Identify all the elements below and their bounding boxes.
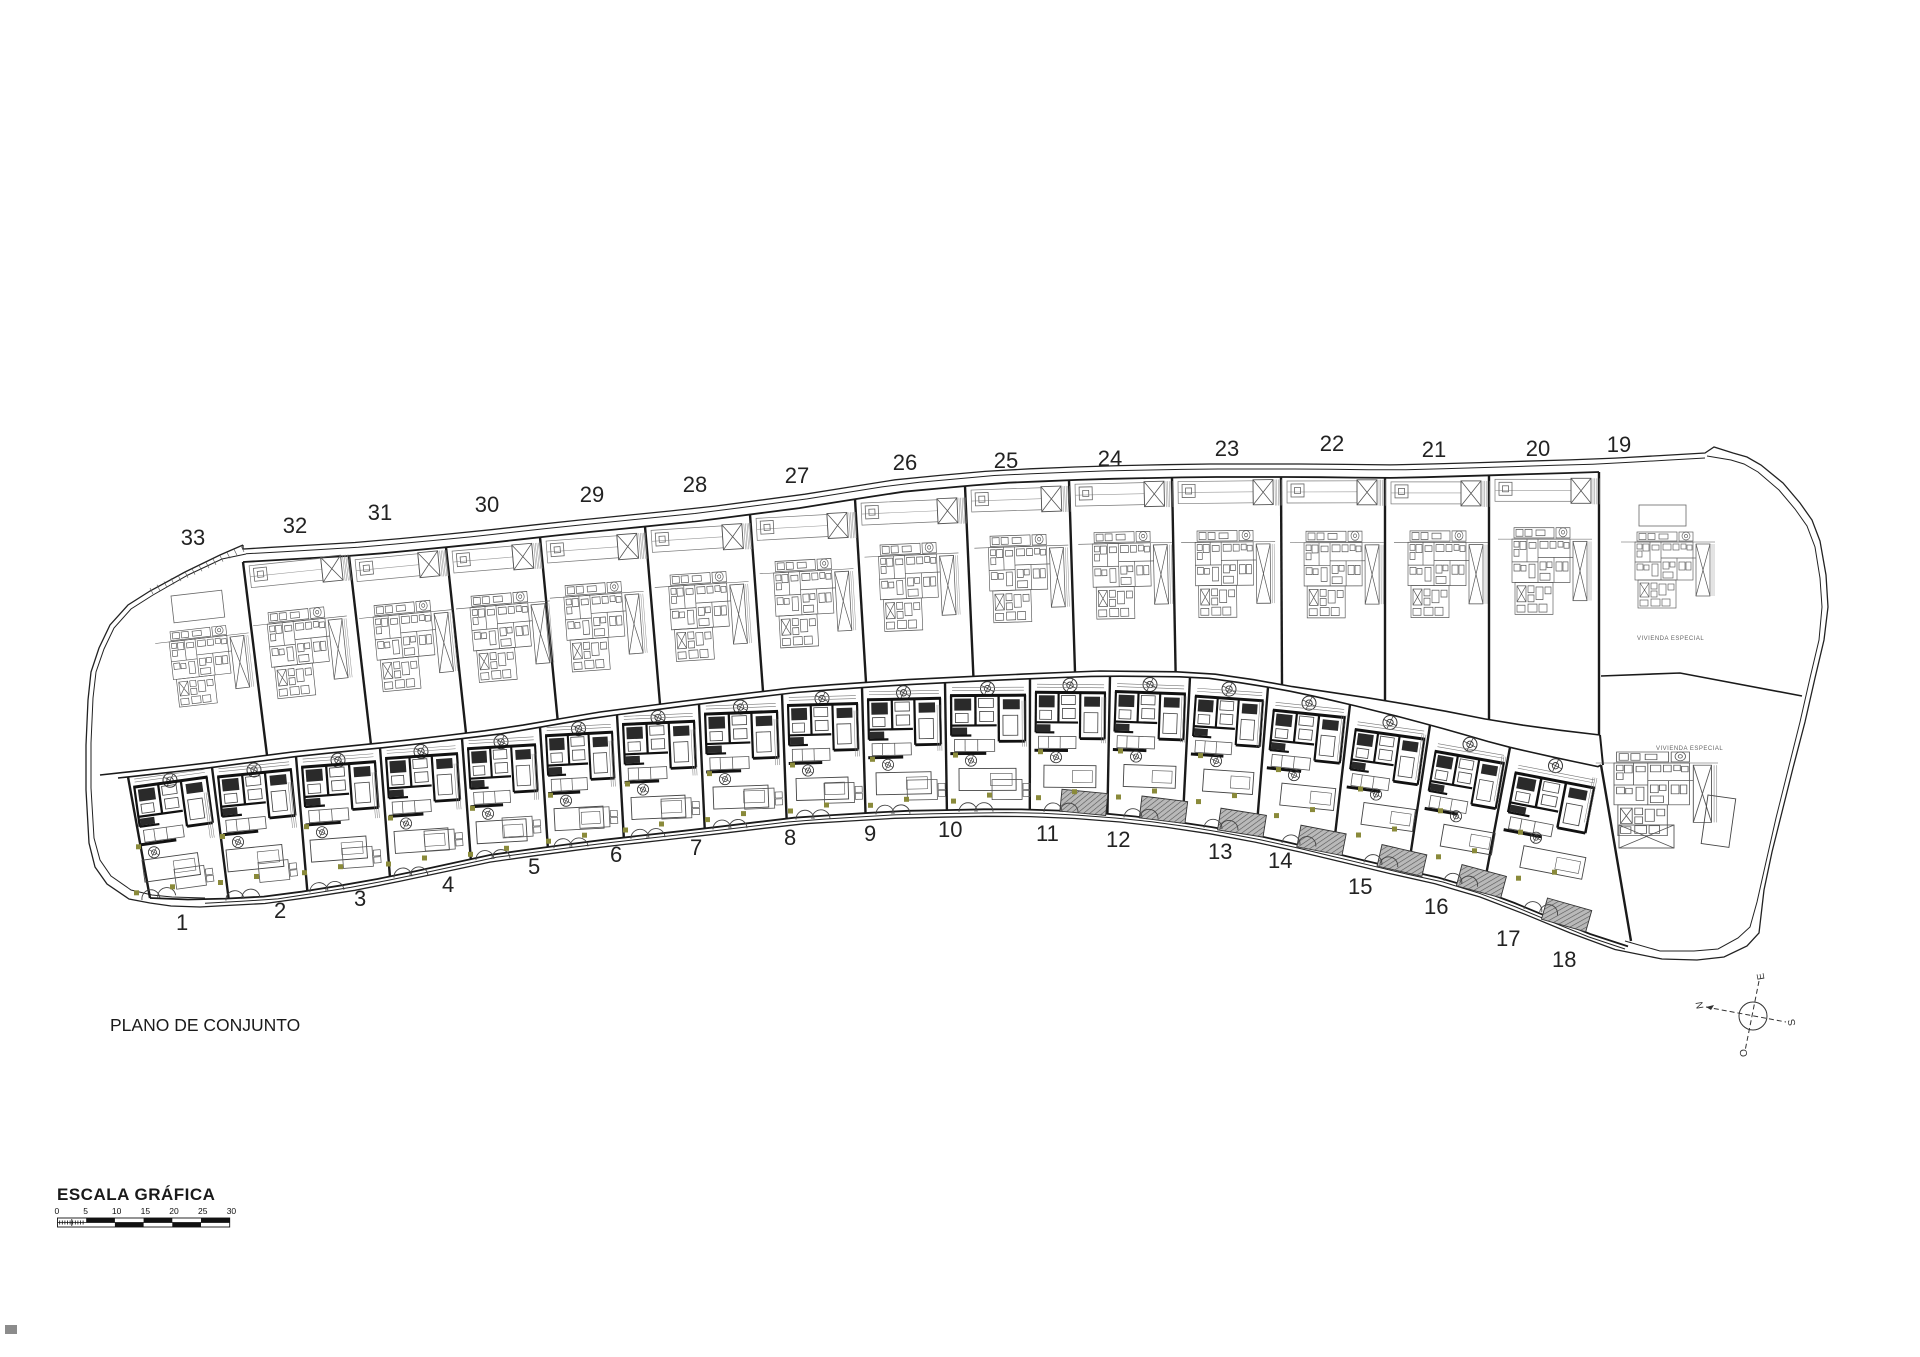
svg-text:3: 3 [354,886,366,911]
svg-text:20: 20 [169,1206,179,1216]
svg-text:32: 32 [283,513,307,538]
svg-text:31: 31 [368,500,392,525]
svg-text:7: 7 [690,835,702,860]
svg-text:0: 0 [55,1206,60,1216]
svg-text:12: 12 [1106,827,1130,852]
svg-text:PLANO DE CONJUNTO: PLANO DE CONJUNTO [110,1015,300,1035]
svg-text:29: 29 [580,482,604,507]
svg-text:5: 5 [83,1206,88,1216]
svg-text:6: 6 [610,842,622,867]
svg-text:30: 30 [475,492,499,517]
svg-text:30: 30 [227,1206,237,1216]
svg-text:19: 19 [1607,432,1631,457]
svg-text:ESCALA GRÁFICA: ESCALA GRÁFICA [57,1185,215,1204]
svg-text:33: 33 [181,525,205,550]
svg-text:26: 26 [893,450,917,475]
svg-text:16: 16 [1424,894,1448,919]
svg-text:13: 13 [1208,839,1232,864]
svg-text:27: 27 [785,463,809,488]
svg-text:4: 4 [442,872,454,897]
svg-text:2: 2 [274,898,286,923]
svg-text:8: 8 [784,825,796,850]
svg-text:25: 25 [198,1206,208,1216]
svg-text:23: 23 [1215,436,1239,461]
svg-text:VIVIENDA ESPECIAL: VIVIENDA ESPECIAL [1656,746,1723,752]
svg-text:10: 10 [112,1206,122,1216]
svg-text:21: 21 [1422,437,1446,462]
svg-text:22: 22 [1320,431,1344,456]
svg-text:5: 5 [528,854,540,879]
svg-text:24: 24 [1098,446,1122,471]
svg-text:1: 1 [176,910,188,935]
svg-text:14: 14 [1268,848,1292,873]
svg-text:10: 10 [938,817,962,842]
svg-text:28: 28 [683,472,707,497]
svg-text:9: 9 [864,821,876,846]
svg-text:11: 11 [1036,821,1059,846]
svg-text:25: 25 [994,448,1018,473]
svg-text:20: 20 [1526,436,1550,461]
svg-text:15: 15 [141,1206,151,1216]
svg-text:15: 15 [1348,874,1372,899]
svg-text:17: 17 [1496,926,1520,951]
svg-text:18: 18 [1552,947,1576,972]
svg-text:VIVIENDA ESPECIAL: VIVIENDA ESPECIAL [1637,636,1704,642]
